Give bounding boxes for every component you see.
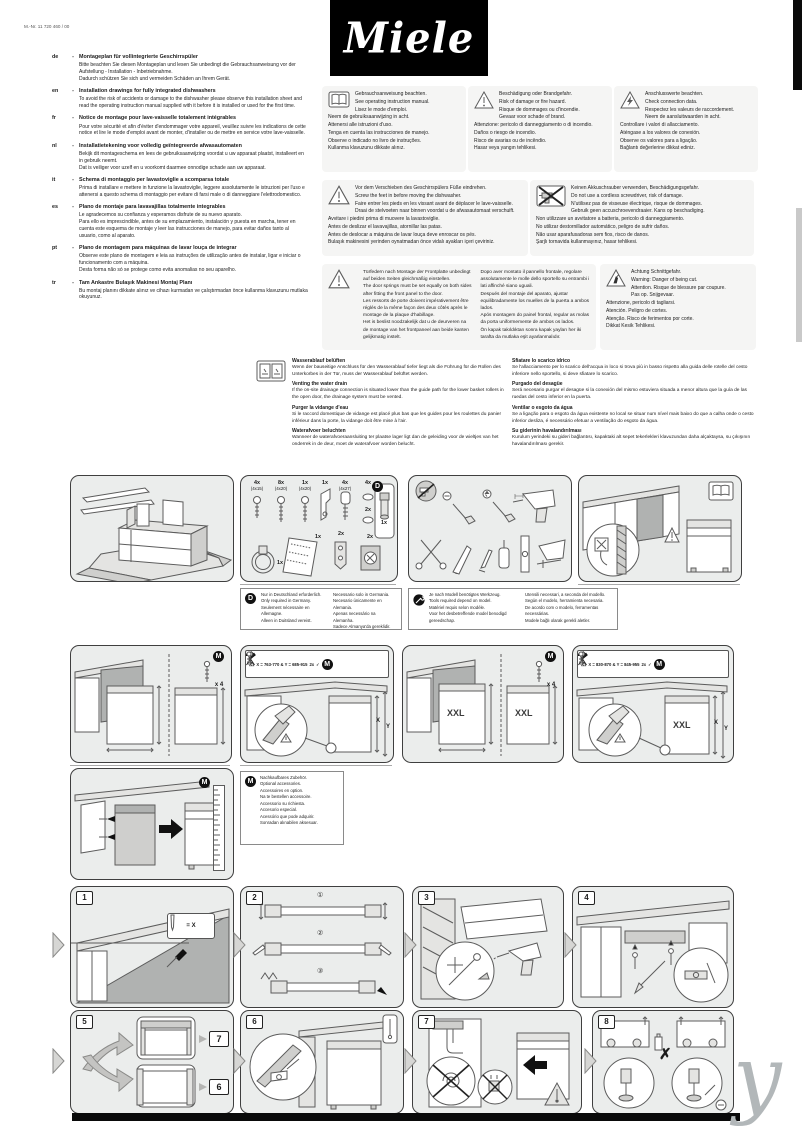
venting-body: Se l'allacciamento per lo scarico dell'a…: [512, 365, 754, 378]
panel-site-check: [578, 475, 742, 582]
section-divider: [578, 584, 740, 585]
step-number: 2: [246, 891, 263, 905]
venting-body: Wanneer de waterafvoeraansluiting ter pl…: [292, 435, 504, 448]
germany-note-col2: Necessario solo in Germania. Necesario ú…: [333, 592, 397, 631]
site-check-illustration: [579, 476, 741, 581]
page-edge-gray-strip: [796, 208, 802, 342]
xxl-label: XXL: [673, 720, 691, 730]
chevron-arrow: [404, 932, 417, 958]
step5-illustration: [71, 1011, 233, 1113]
substep-number: ①: [317, 891, 323, 899]
tools-note-icon: [413, 593, 425, 611]
step1-illustration: [71, 887, 233, 1007]
step1-inset: = X: [167, 913, 215, 939]
venting-body: Se a ligação para o esgoto da água exist…: [512, 412, 754, 425]
panel-step-6: 6: [240, 1010, 404, 1114]
packaging-illustration: [71, 476, 233, 581]
dim-x-label: X: [373, 718, 383, 725]
substep-number: ③: [317, 967, 323, 975]
electric-warning-icon: [620, 91, 640, 113]
no-cordless-badge: [416, 481, 436, 501]
venting-left-column: Wasserablauf belüften Wenn der bauseitig…: [292, 358, 504, 452]
tools-note-col2: Utensili necessari, a seconda del modell…: [525, 592, 613, 624]
intro-entry-en: en- Installation drawings for fully inte…: [52, 88, 308, 110]
venting-heading: Wasserablauf belüften: [292, 358, 504, 365]
approved-screw-icon: [246, 651, 252, 667]
intro-entry-tr: tr- Tam Ankastre Bulaşık Makinesi Montaj…: [52, 280, 308, 302]
section-divider: [70, 765, 230, 766]
step-number: 6: [246, 1015, 263, 1029]
intro-language-list: de- Montageplan für vollintegrierte Gesc…: [52, 54, 308, 301]
niche-xxl-illustration: [403, 646, 563, 762]
panel-tools: [408, 475, 572, 582]
dim-y-label: Y: [721, 726, 731, 733]
step6-illustration: [241, 1011, 403, 1113]
notice-door-springs: Türfedern nach Montage der Frontplatte u…: [322, 264, 596, 350]
step4-illustration: [573, 887, 733, 1007]
chevron-arrow: [564, 932, 577, 958]
niche-standard-illustration: [71, 646, 231, 762]
tools-note-col1: Je nach Modell benötigtes Werkzeug. Tool…: [429, 592, 517, 624]
goto-step-6-badge: 6: [209, 1079, 229, 1095]
step-number: 4: [578, 891, 595, 905]
panel-step-4: 4: [572, 886, 734, 1008]
dims-standard-text: X = 763-770 & Y = 685-915: [256, 662, 307, 667]
germany-badge: D: [245, 593, 256, 604]
intro-entry-nl: nl- Installatietekening voor volledig ge…: [52, 143, 308, 172]
bracket-label: 1x: [315, 480, 335, 486]
book-icon: [328, 91, 350, 112]
section-divider: [240, 584, 396, 585]
optional-accessories-box: M Nachkaufbares Zubehör. Optional access…: [240, 771, 344, 845]
notice-door-springs-col2: Dopo aver montato il pannello frontale, …: [481, 269, 591, 341]
substep-number: ②: [317, 929, 323, 937]
step7-illustration: [413, 1011, 581, 1113]
notice-fire-hazard: Beschädigung oder Brandgefahr. Risk of d…: [468, 86, 612, 172]
fixings-illustration: [241, 476, 397, 581]
screw-count-label: x 4: [541, 682, 561, 689]
xxl-label: XXL: [515, 708, 533, 718]
brand-wordmark: Miele: [344, 13, 475, 62]
chevron-arrow: [52, 932, 65, 958]
cross-mark: ✗: [659, 1045, 672, 1063]
notice-no-cordless: Keinen Akkuschrauber verwenden, Beschädi…: [530, 180, 754, 256]
pencil-icon: [168, 914, 176, 932]
inset-label: = X: [186, 923, 195, 929]
notice-screw-feet: Vor dem Verschieben des Geschirrspülers …: [322, 180, 528, 256]
venting-body: Wenn der bauseitige Anschluss für den Wa…: [292, 365, 504, 378]
step-number: 7: [418, 1015, 435, 1029]
venting-icon: [256, 360, 286, 387]
panel-step-8: 8 ✗: [592, 1010, 734, 1114]
step-number: 8: [598, 1015, 615, 1029]
dims-xxl-text: X = 830-870 & Y = 845-955: [588, 662, 639, 667]
dim-x-label: X: [711, 720, 721, 727]
intro-entry-es: es- Plano de montaje para lavavajillas t…: [52, 204, 308, 240]
check-mark: ✓: [648, 662, 652, 667]
venting-body: If the on-site drainage connection is si…: [292, 388, 504, 401]
notice-observe-manual: Gebrauchsanweisung beachten. See operati…: [322, 86, 466, 172]
material-number: M.-Nr. 11 720 460 / 00: [24, 24, 69, 29]
clamp-label: 1x: [273, 560, 287, 566]
notice-door-springs-col1: Türfedern nach Montage der Frontplatte u…: [363, 269, 473, 341]
venting-body: Si le raccord domestique de vidange est …: [292, 412, 504, 425]
panel-packaging: [70, 475, 234, 582]
step2-illustration: [241, 887, 403, 1007]
step3-illustration: [413, 887, 563, 1007]
notice-connection-data: Anschlusswerte beachten. Check connectio…: [614, 86, 758, 172]
miele-badge: M: [322, 659, 333, 670]
intro-entry-fr: fr- Notice de montage pour lave-vaissell…: [52, 115, 308, 137]
warning-triangle-icon: [328, 269, 350, 339]
venting-right-column: Sfiatare lo scarico idrico Se l'allaccia…: [512, 358, 754, 452]
miele-badge: M: [213, 651, 224, 662]
warning-triangle-icon: [474, 91, 494, 113]
venting-body: Kurulum yerindeki su gideri bağlantısı, …: [512, 435, 754, 448]
tools-note-box: Je nach Modell benötigtes Werkzeug. Tool…: [408, 588, 618, 630]
sieve-label: 2x: [362, 534, 378, 540]
warning-triangle-icon: [328, 185, 350, 209]
chevron-arrow: [233, 1048, 246, 1074]
check-mark: ✓: [316, 662, 320, 667]
rejected-qty: 2x: [641, 662, 646, 667]
approved-screw-icon: [578, 651, 584, 667]
screw-label: 1x(4x20): [293, 480, 317, 491]
screw-count-label: x 4: [209, 682, 229, 689]
goto-step-7-badge: 7: [209, 1031, 229, 1047]
panel-step-5: 5 7 6: [70, 1010, 234, 1114]
germany-badge: D: [372, 481, 383, 492]
miele-badge: M: [245, 776, 256, 787]
miele-badge: M: [199, 777, 210, 788]
screw-label: 4x(4x15): [245, 480, 269, 491]
panel-dims-xxl: ⚠ X = 830-870 & Y = 845-955 2x ✓ M XXL X…: [572, 645, 734, 763]
panel-step-1: 1 = X: [70, 886, 234, 1008]
step-number: 5: [76, 1015, 93, 1029]
intro-entry-pt: pt- Plano de montagem para máquinas de l…: [52, 245, 308, 274]
germany-note-col1: Nur in Deutschland erforderlich. Only re…: [261, 592, 325, 631]
panel-fixings: 4x(4x15) 8x(4x20) 1x(4x20) 1x 4x(4x27) 4…: [240, 475, 398, 582]
cut-warning-icon: [606, 269, 626, 291]
chevron-arrow: [404, 1048, 417, 1074]
page-watermark: y: [733, 1028, 782, 1128]
chevron-arrow: [233, 932, 246, 958]
page-edge-black-strip: [793, 0, 802, 90]
step-number: 1: [76, 891, 93, 905]
germany-note-box: D Nur in Deutschland erforderlich. Only …: [240, 588, 402, 630]
holder-label: 2x: [333, 531, 349, 537]
venting-heading: Ventilar o esgoto da água: [512, 405, 754, 412]
footer-bar: [72, 1113, 740, 1121]
plug-label: 4x(4x27): [334, 480, 356, 491]
panel-step-2: 2 ① ② ③: [240, 886, 404, 1008]
panel-dims-standard: ⚠ X = 763-770 & Y = 685-915 2x ✓ M X Y: [240, 645, 394, 763]
manual-page: M.-Nr. 11 720 460 / 00 Miele de- Montage…: [0, 0, 802, 1134]
rejected-qty: 2x: [309, 662, 314, 667]
panel-niche-standard: M x 4: [70, 645, 232, 763]
chevron-arrow: [52, 1048, 65, 1074]
miele-badge: M: [545, 651, 556, 662]
venting-heading: Purger la vidange d'eau: [292, 405, 504, 412]
panel-niche-xxl: M x 4 XXL XXL: [402, 645, 564, 763]
notice-cut-hazard: Achtung Schnittgefahr. Warning: Danger o…: [600, 264, 756, 350]
no-cordless-screwdriver-icon: [536, 185, 566, 211]
dbox-label: 1x: [377, 520, 391, 526]
cap-label: 2x: [358, 507, 378, 513]
dims-standard-header: ⚠ X = 763-770 & Y = 685-915 2x ✓ M: [245, 650, 389, 678]
intro-entry-de: de- Montageplan für vollintegrierte Gesc…: [52, 54, 308, 83]
intro-entry-it: it- Schema di montaggio per lavastovigli…: [52, 177, 308, 199]
venting-heading: Sfiatare lo scarico idrico: [512, 358, 754, 365]
panel-front-panel-mounting: M: [70, 768, 234, 880]
panel-step-7: 7: [412, 1010, 582, 1114]
dim-y-label: Y: [383, 724, 393, 731]
step-number: 3: [418, 891, 435, 905]
notice-screw-feet-text: Vor dem Verschieben des Geschirrspülers …: [328, 185, 515, 245]
sheet-label: 1x: [311, 534, 325, 540]
chevron-arrow: [584, 1048, 597, 1074]
xxl-label: XXL: [447, 708, 465, 718]
optional-accessories-text: Nachkaufbares Zubehör. Optional accessor…: [260, 775, 339, 827]
miele-logo: Miele: [330, 0, 488, 76]
venting-body: Será necesario purgar el desagüe si la c…: [512, 388, 754, 401]
miele-badge: M: [654, 659, 665, 670]
screw-label: 8x(4x20): [269, 480, 293, 491]
panel-step-3: 3: [412, 886, 564, 1008]
tools-illustration: [409, 476, 571, 581]
dims-xxl-header: ⚠ X = 830-870 & Y = 845-955 2x ✓ M: [577, 650, 729, 678]
ruler-strip: [213, 785, 225, 871]
section-divider: [240, 765, 392, 766]
